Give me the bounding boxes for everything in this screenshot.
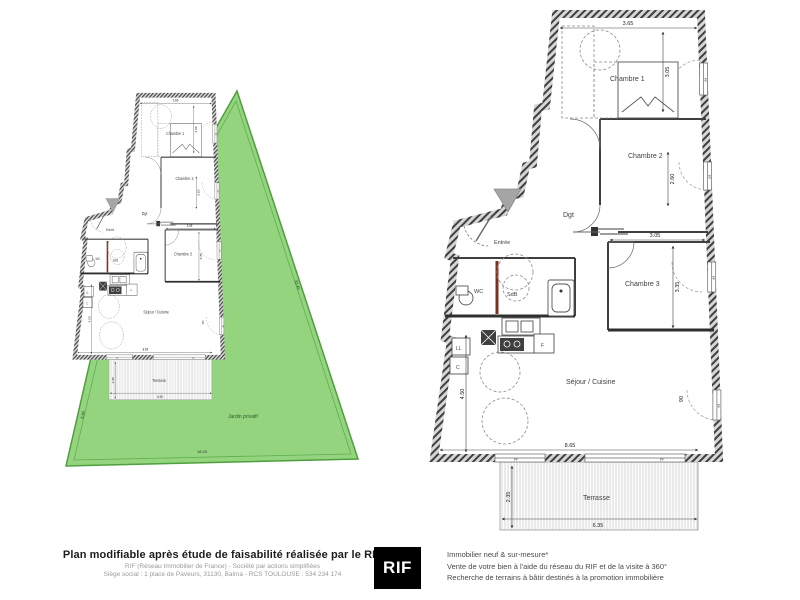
footer-title: Plan modifiable après étude de faisabili…: [55, 549, 390, 561]
footer-company-line: RIF (Réseau Immobilier de France) - Soci…: [55, 563, 390, 570]
left-plan-with-garden: Jardin privatif 18.25 33.45 6.60: [66, 91, 358, 466]
floorplan-page: { "plans": { "rooms": { "chambre1": "Cha…: [0, 0, 800, 600]
footer-left-block: Plan modifiable après étude de faisabili…: [55, 549, 390, 578]
floorplans-canvas: Chambre 1 Chambre 2 Chambre 3 Dgt Entrée…: [0, 0, 800, 545]
footer-right-block: Immobilier neuf & sur-mesure* Vente de v…: [447, 550, 767, 585]
label-jardin-privatif: Jardin privatif: [228, 414, 258, 420]
dim-jardin-bottom: 18.25: [197, 449, 208, 454]
footer: Plan modifiable après étude de faisabili…: [0, 543, 800, 600]
footer-service-line-2: Vente de votre bien à l'aide du réseau d…: [447, 562, 767, 571]
footer-service-line-1: Immobilier neuf & sur-mesure*: [447, 550, 767, 559]
footer-address-line: Siège social : 1 place de Paveurs, 31130…: [55, 571, 390, 578]
rif-logo: RIF: [374, 547, 421, 589]
mini-apartment-plan: [75, 95, 224, 399]
footer-service-line-3: Recherche de terrains à bâtir destinés à…: [447, 573, 767, 582]
large-apartment-plan: [434, 14, 721, 530]
